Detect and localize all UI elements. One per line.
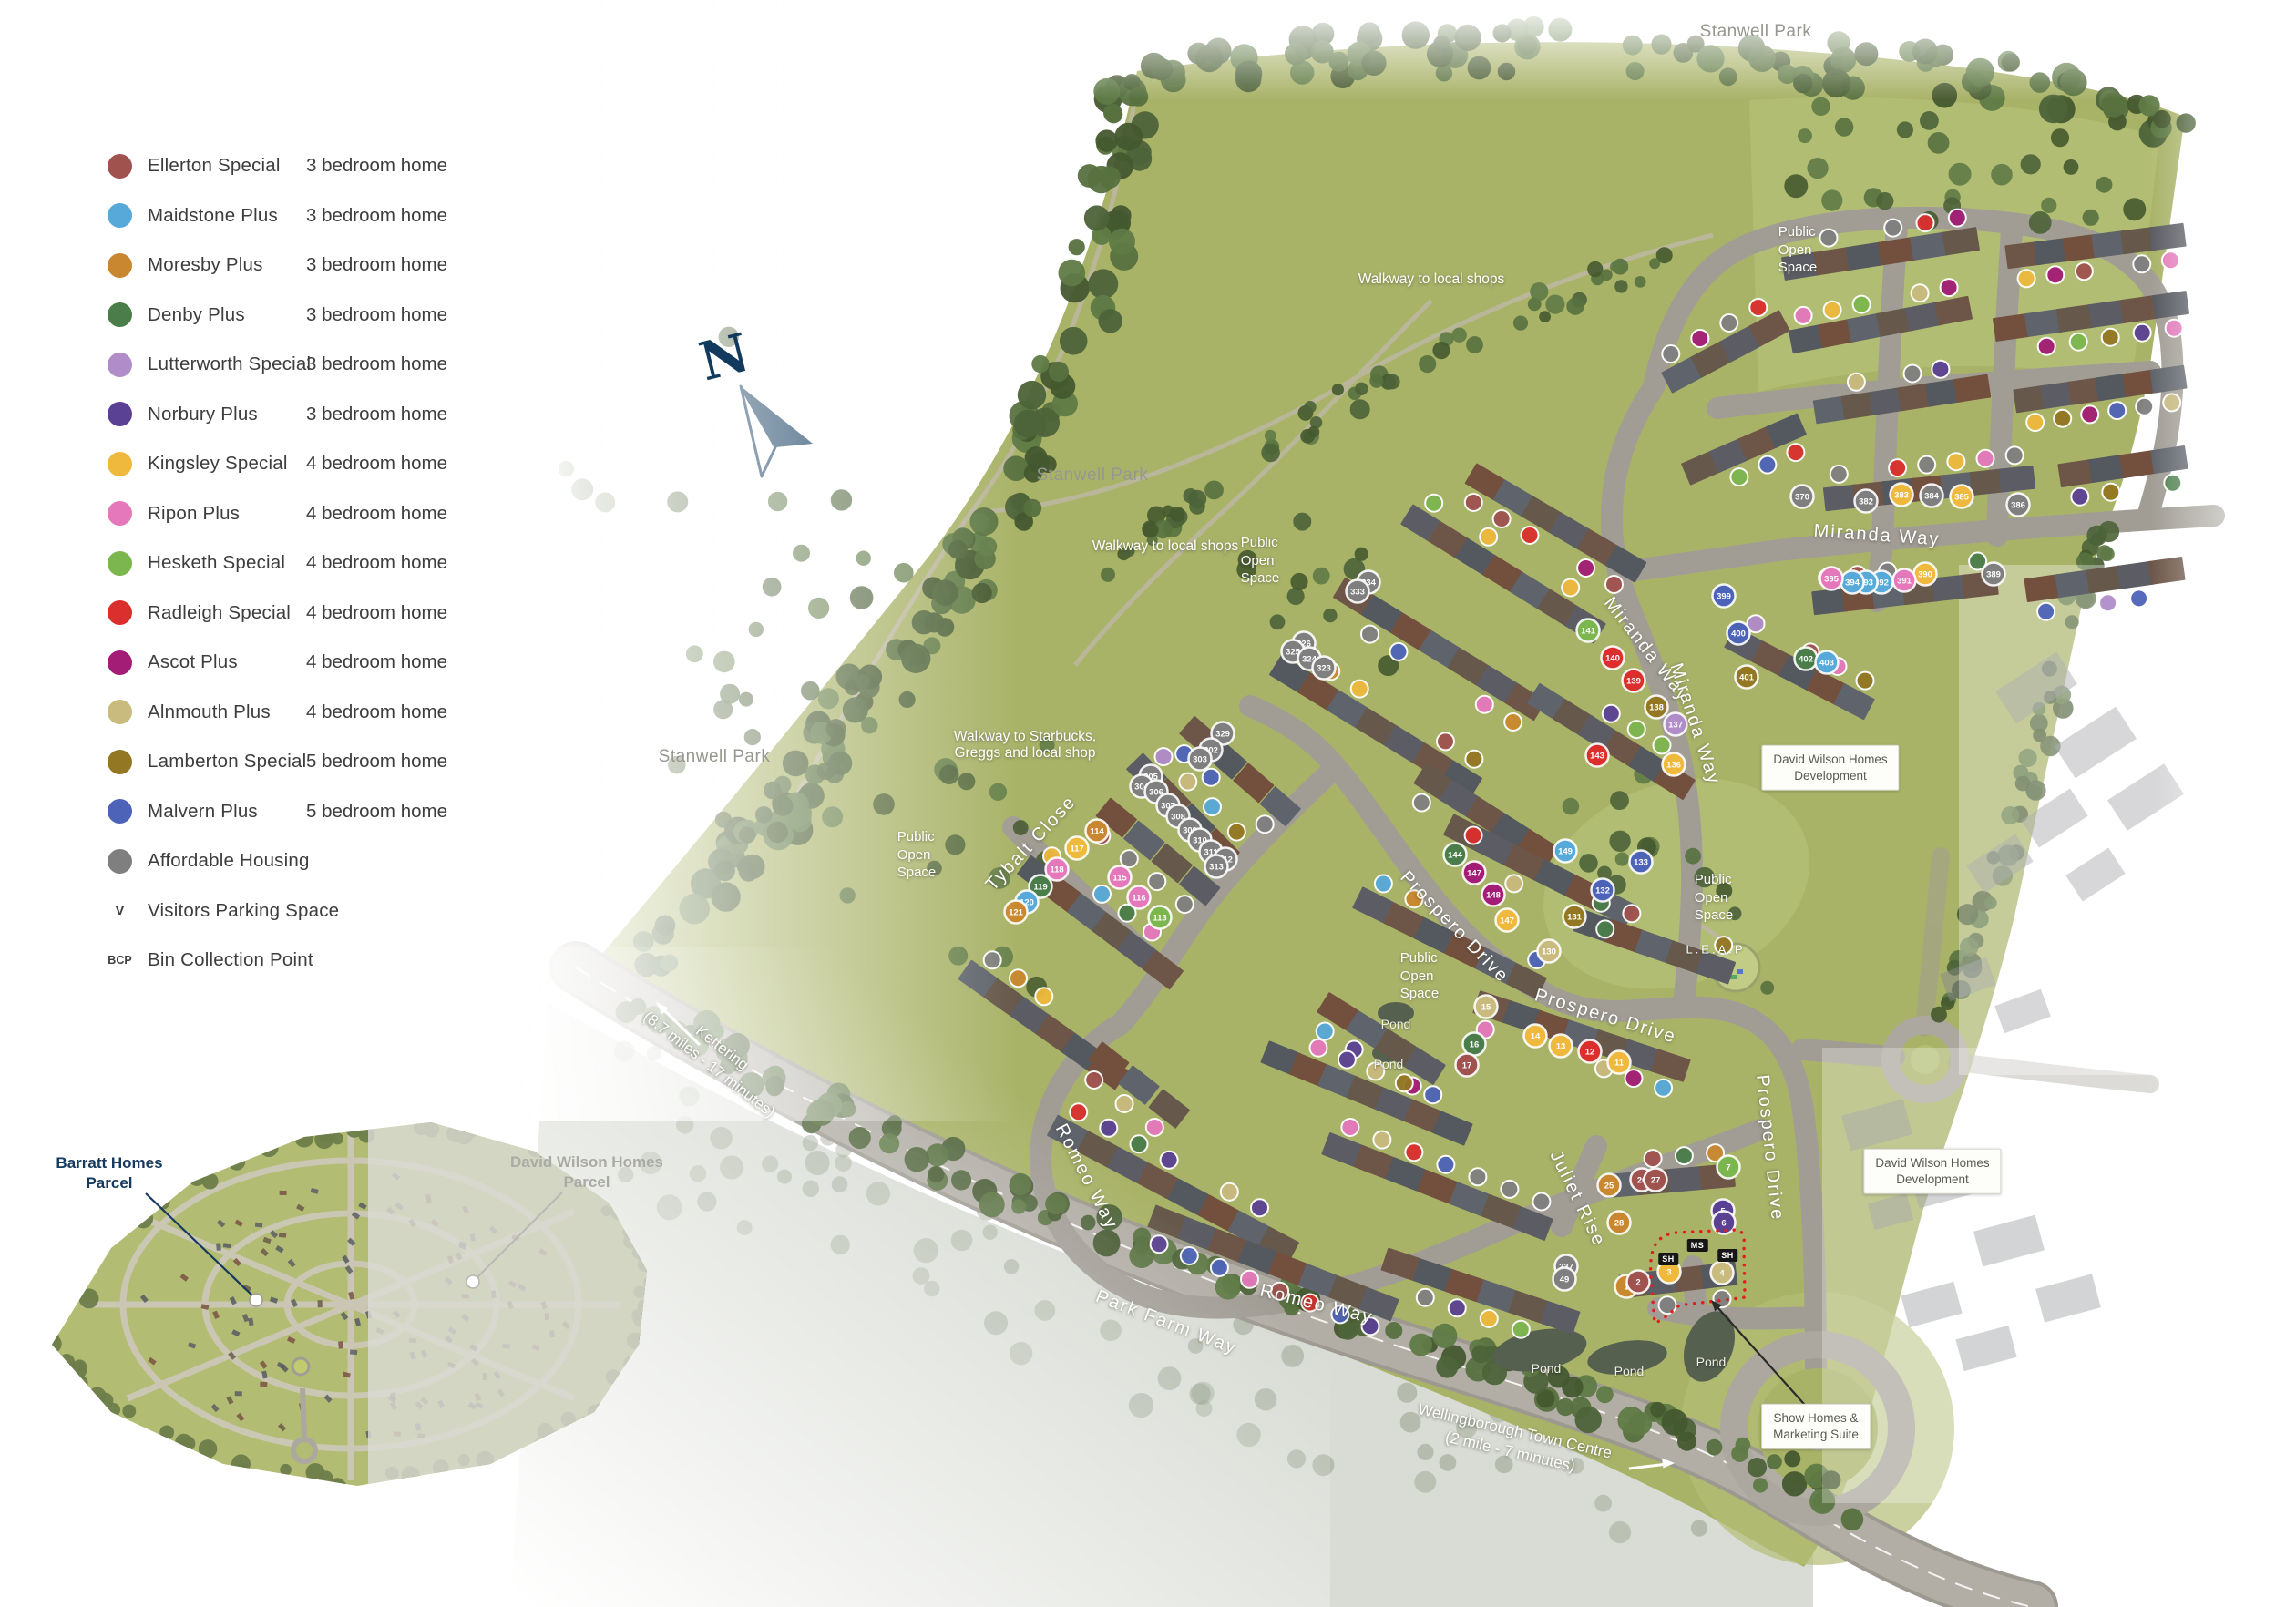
legend-symbol-bcp: BCPBin Collection Point [108,947,490,973]
legend-item-bedrooms: 4 bedroom home [306,701,447,723]
legend-item-bedrooms: 4 bedroom home [306,503,447,525]
legend-colour-dot [108,302,132,327]
legend-item-bedrooms: 4 bedroom home [306,651,447,673]
legend-item-bedrooms: 3 bedroom home [306,404,447,425]
legend-item-bedrooms: 4 bedroom home [306,602,447,624]
legend-item-name: Ripon Plus [148,503,240,525]
legend-item-bedrooms: 3 bedroom home [306,254,447,276]
legend-item-denby-plus: Denby Plus3 bedroom home [108,302,490,328]
legend-item-name: Maidstone Plus [148,205,278,227]
legend-colour-dot [108,452,132,476]
legend-colour-dot [108,253,132,278]
show-home-badge-sh: SH [1658,1253,1678,1265]
show-home-badge-ms: MS [1687,1239,1708,1252]
legend-item-bedrooms: 5 bedroom home [306,801,447,823]
legend-item-ellerton-special: Ellerton Special3 bedroom home [108,153,490,179]
legend-item-moresby-plus: Moresby Plus3 bedroom home [108,252,490,278]
inset-parcel-label: Barratt Homes Parcel [56,1153,162,1193]
legend-symbol: V [108,903,132,918]
legend-item-ripon-plus: Ripon Plus4 bedroom home [108,501,490,527]
legend-item-maidstone-plus: Maidstone Plus3 bedroom home [108,203,490,229]
legend-symbol: BCP [108,954,132,967]
show-home-badge-sh: SH [1717,1249,1737,1262]
inset-south-roundabout [293,1439,315,1461]
legend-item-name: Lutterworth Special [148,353,311,375]
legend-colour-dot [108,353,132,377]
legend-item-kingsley-special: Kingsley Special4 bedroom home [108,451,490,476]
legend-item-bedrooms: 4 bedroom home [306,552,447,574]
legend-item-bedrooms: 5 bedroom home [306,751,447,773]
legend-item-name: Ascot Plus [148,651,238,673]
legend-symbol-label: Bin Collection Point [148,949,313,971]
legend-item-lamberton-special: Lamberton Special5 bedroom home [108,749,490,774]
legend-colour-dot [108,849,132,874]
barratt-parcel-dot [250,1294,262,1306]
legend-item-malvern-plus: Malvern Plus5 bedroom home [108,799,490,824]
inset-roundabout [292,1358,309,1375]
site-plan-page: 3703823833843853863893903913923933943953… [0,0,2296,1607]
legend-item-bedrooms: 3 bedroom home [306,155,447,177]
legend-item-name: Radleigh Special [148,602,291,624]
legend-colour-dot [108,154,132,179]
legend-colour-dot [108,799,132,824]
legend-item-bedrooms: 3 bedroom home [306,304,447,326]
legend-item-name: Norbury Plus [148,404,258,425]
legend-item-name: Lamberton Special [148,751,306,773]
legend-item-name: Alnmouth Plus [148,701,271,723]
legend-colour-dot [108,600,132,625]
legend-item-lutterworth-special: Lutterworth Special3 bedroom home [108,352,490,377]
legend-colour-dot [108,402,132,426]
legend-item-name: Denby Plus [148,304,245,326]
legend-item-bedrooms: 3 bedroom home [306,205,447,227]
legend-item-name: Ellerton Special [148,155,281,177]
info-box: Show Homes & Marketing Suite [1761,1404,1871,1449]
legend-item-bedrooms: 3 bedroom home [306,353,447,375]
legend-item-name: Malvern Plus [148,801,258,823]
inset-parcel-label: David Wilson Homes Parcel [510,1152,663,1192]
legend-colour-dot [108,700,132,724]
legend-colour-dot [108,501,132,526]
legend-item-ascot-plus: Ascot Plus4 bedroom home [108,650,490,675]
info-box: David Wilson Homes Development [1863,1149,2001,1194]
legend-colour-dot [108,650,132,675]
legend-item-name: Affordable Housing [148,850,310,872]
legend-item-name: Moresby Plus [148,254,263,276]
legend-item-name: Hesketh Special [148,552,285,574]
legend-item-affordable-housing: Affordable Housing [108,848,490,874]
legend-item-hesketh-special: Hesketh Special4 bedroom home [108,550,490,576]
legend-colour-dot [108,203,132,228]
legend-item-bedrooms: 4 bedroom home [306,453,447,475]
info-box: David Wilson Homes Development [1761,745,1899,791]
legend: Ellerton Special3 bedroom homeMaidstone … [108,153,490,998]
legend-item-radleigh-special: Radleigh Special4 bedroom home [108,600,490,626]
legend-item-name: Kingsley Special [148,453,288,475]
david-wilson-parcel-dot [466,1275,479,1288]
legend-colour-dot [108,750,132,774]
legend-item-alnmouth-plus: Alnmouth Plus4 bedroom home [108,700,490,725]
legend-symbol-label: Visitors Parking Space [148,900,339,922]
legend-colour-dot [108,551,132,576]
legend-symbol-v: VVisitors Parking Space [108,898,490,924]
legend-item-norbury-plus: Norbury Plus3 bedroom home [108,402,490,427]
